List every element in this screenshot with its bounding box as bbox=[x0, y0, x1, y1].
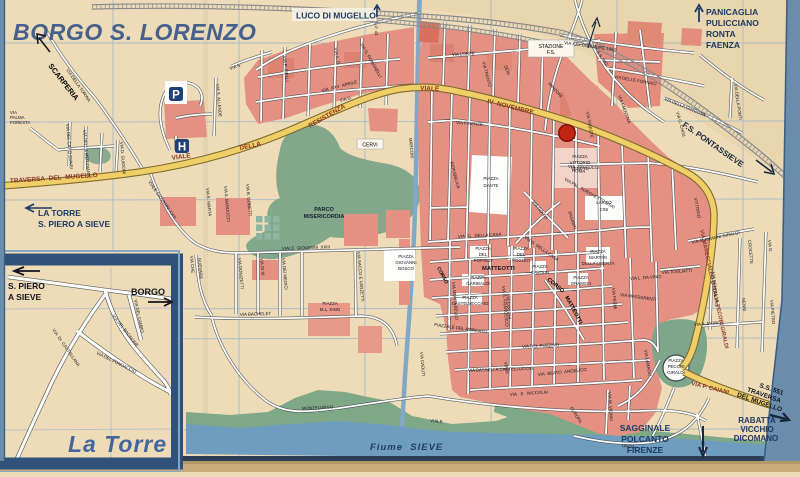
svg-text:GIOVANNI: GIOVANNI bbox=[395, 260, 416, 265]
svg-text:H: H bbox=[178, 142, 186, 154]
svg-text:POPOLO: POPOLO bbox=[474, 258, 493, 263]
svg-text:VIALE: VIALE bbox=[420, 85, 440, 93]
svg-text:PIAZZA: PIAZZA bbox=[668, 358, 683, 363]
svg-text:DELLA LIBERTA: DELLA LIBERTA bbox=[582, 261, 615, 266]
svg-text:FAENZA: FAENZA bbox=[706, 40, 740, 50]
svg-text:BORGO: BORGO bbox=[131, 287, 165, 297]
svg-text:La Torre: La Torre bbox=[68, 431, 167, 457]
svg-text:BOSCO: BOSCO bbox=[398, 266, 414, 271]
svg-text:PANICAGLIA: PANICAGLIA bbox=[706, 7, 758, 17]
svg-text:POLCANTO: POLCANTO bbox=[621, 434, 669, 444]
svg-text:MARTIRI: MARTIRI bbox=[589, 255, 607, 260]
svg-text:PIAZZA: PIAZZA bbox=[483, 176, 498, 181]
svg-text:FORESTA: FORESTA bbox=[10, 120, 30, 125]
svg-text:MISERICORDIA: MISERICORDIA bbox=[304, 214, 345, 220]
svg-text:S. PIERO A SIEVE: S. PIERO A SIEVE bbox=[38, 219, 110, 229]
svg-text:PECORI: PECORI bbox=[668, 364, 685, 369]
svg-text:S. PIERO: S. PIERO bbox=[8, 281, 45, 291]
svg-text:GARIBALDI: GARIBALDI bbox=[466, 281, 489, 286]
svg-text:LA TORRE: LA TORRE bbox=[38, 208, 81, 218]
svg-text:LUCO DI MUGELLO: LUCO DI MUGELLO bbox=[296, 11, 376, 21]
svg-text:PIAZZA: PIAZZA bbox=[398, 254, 413, 259]
svg-text:DEL: DEL bbox=[479, 252, 488, 257]
svg-text:PARCO: PARCO bbox=[314, 207, 334, 213]
svg-text:PIAZZA: PIAZZA bbox=[532, 264, 547, 269]
svg-text:DEL: DEL bbox=[517, 252, 526, 257]
svg-text:PIAZZA: PIAZZA bbox=[590, 249, 605, 254]
svg-text:PIAZZA: PIAZZA bbox=[513, 246, 528, 251]
svg-text:RONTA: RONTA bbox=[706, 29, 736, 39]
svg-text:PULICCIANO: PULICCIANO bbox=[706, 18, 759, 28]
svg-text:POGGIO: POGGIO bbox=[512, 258, 530, 263]
svg-text:PIAZZA: PIAZZA bbox=[572, 154, 587, 159]
svg-text:PIAZZA: PIAZZA bbox=[573, 275, 588, 280]
svg-text:DANTE: DANTE bbox=[484, 183, 499, 188]
svg-text:PIAZZA: PIAZZA bbox=[470, 275, 485, 280]
svg-text:BORGO S. LORENZO: BORGO S. LORENZO bbox=[13, 19, 256, 45]
svg-text:CERVI: CERVI bbox=[362, 143, 377, 149]
svg-text:DICOMANO: DICOMANO bbox=[734, 434, 778, 443]
svg-text:MATTEOTTI: MATTEOTTI bbox=[482, 266, 515, 272]
svg-text:GIRALDI: GIRALDI bbox=[667, 370, 685, 375]
svg-text:ROMA: ROMA bbox=[572, 168, 586, 174]
svg-text:PIAZZA: PIAZZA bbox=[322, 301, 337, 306]
svg-text:CAVOUR: CAVOUR bbox=[531, 270, 549, 275]
svg-text:Fiume SIEVE: Fiume SIEVE bbox=[370, 442, 443, 453]
svg-text:P: P bbox=[172, 90, 180, 102]
svg-text:A SIEVE: A SIEVE bbox=[8, 292, 42, 302]
svg-text:M.L. KING: M.L. KING bbox=[320, 307, 341, 312]
svg-text:RABATTA: RABATTA bbox=[738, 416, 776, 425]
svg-text:F.S.: F.S. bbox=[547, 50, 556, 56]
svg-text:PIAZZA: PIAZZA bbox=[462, 295, 477, 300]
svg-text:GRAMSCI: GRAMSCI bbox=[571, 281, 592, 286]
svg-text:SAGGINALE: SAGGINALE bbox=[620, 423, 671, 433]
svg-text:PIAZZA: PIAZZA bbox=[475, 246, 490, 251]
svg-text:CINI: CINI bbox=[600, 207, 609, 212]
svg-text:VICCHIO: VICCHIO bbox=[740, 425, 773, 434]
